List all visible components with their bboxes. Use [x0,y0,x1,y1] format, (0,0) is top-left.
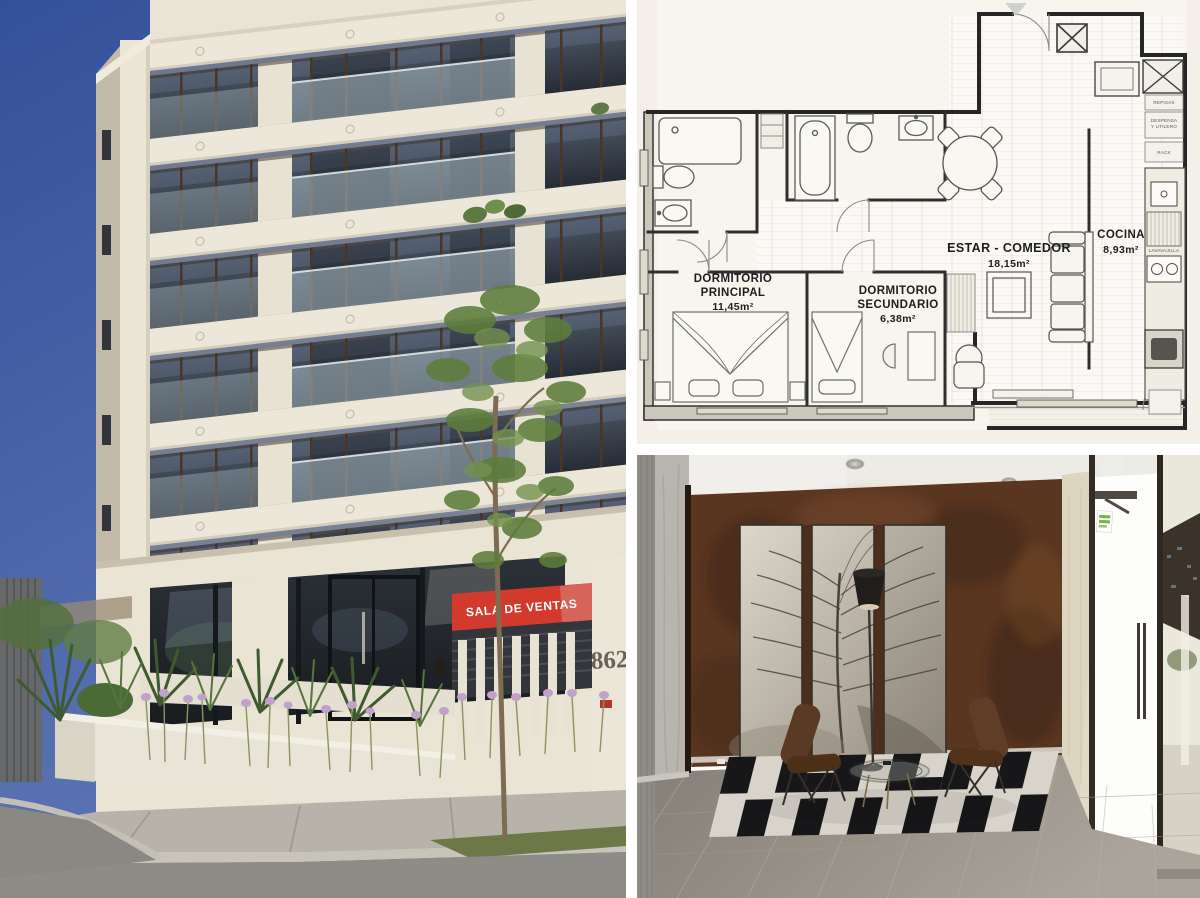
svg-text:DORMITORIO: DORMITORIO [859,285,938,297]
svg-text:SECUNDARIO: SECUNDARIO [857,299,938,311]
floor-plan-tile: DORMITORIO PRINCIPAL 11,45m² DORMITORIO … [637,0,1200,444]
building-exterior-illustration: SALA DE VENTAS 862 [0,0,626,898]
door-handle [1143,623,1146,719]
feather-triptych [729,525,946,769]
bed-principal [655,312,805,402]
svg-text:Y UTILERO: Y UTILERO [1151,124,1177,129]
ceiling-light [846,459,864,469]
green-exit-sticker [1096,511,1112,533]
svg-text:8,93m²: 8,93m² [1103,244,1139,256]
street-number-wall: 862 [590,557,626,793]
building-photo-tile: SALA DE VENTAS 862 [0,0,626,898]
svg-text:6,38m²: 6,38m² [880,313,916,325]
svg-text:DORMITORIO: DORMITORIO [694,273,773,285]
svg-text:RACK: RACK [1157,150,1171,155]
building-corner [96,34,150,600]
small-red-plaque [600,700,612,708]
bath-closet [761,114,783,148]
lobby-photo-tile [637,455,1200,898]
tv-bench [993,390,1073,398]
floor-plan-drawing: DORMITORIO PRINCIPAL 11,45m² DORMITORIO … [637,0,1200,444]
intercom-panel [435,660,445,674]
door-handle [1137,623,1140,719]
lobby-interior-illustration [637,455,1200,898]
elevator [1057,24,1087,52]
svg-text:ESTAR - COMEDOR: ESTAR - COMEDOR [947,241,1071,255]
svg-text:11,45m²: 11,45m² [712,301,753,313]
hall-floor [757,200,949,272]
svg-text:18,15m²: 18,15m² [988,258,1030,270]
door-closer [1095,491,1137,499]
svg-text:PRINCIPAL: PRINCIPAL [701,287,766,299]
wall-outlet [717,759,725,764]
svg-text:DESPENSA: DESPENSA [1151,118,1178,123]
svg-text:LAVAVAJILLA: LAVAVAJILLA [1149,248,1180,253]
svg-text:REPISAS: REPISAS [1153,100,1174,105]
dining-set [936,125,1003,201]
street-number: 862 [590,646,626,675]
exterior-view [1163,455,1200,898]
glass-doors [1077,455,1163,883]
photo-collage: SALA DE VENTAS 862 [0,0,1200,898]
hall-closet [947,274,975,332]
svg-text:COCINA: COCINA [1097,229,1145,241]
armchair [954,345,984,388]
